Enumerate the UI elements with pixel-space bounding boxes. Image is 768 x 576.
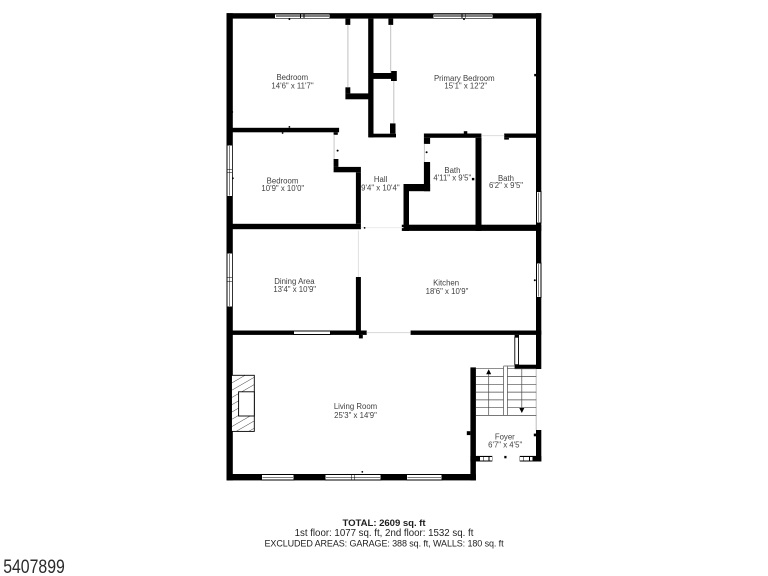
svg-text:6'2" x 9'5": 6'2" x 9'5" (489, 181, 523, 190)
svg-text:10'9" x 10'0": 10'9" x 10'0" (261, 184, 304, 193)
svg-text:EXCLUDED AREAS: GARAGE: 388 sq: EXCLUDED AREAS: GARAGE: 388 sq. ft, WALL… (265, 539, 505, 549)
svg-text:Bedroom: Bedroom (276, 73, 308, 82)
svg-text:14'6" x 11'7": 14'6" x 11'7" (271, 82, 313, 91)
svg-text:18'6" x 10'9": 18'6" x 10'9" (426, 287, 469, 296)
svg-text:25'3" x 14'9": 25'3" x 14'9" (334, 411, 377, 420)
svg-text:6'7" x 4'5": 6'7" x 4'5" (488, 441, 522, 450)
svg-text:1st floor: 1077 sq. ft, 2nd fl: 1st floor: 1077 sq. ft, 2nd floor: 1532 … (295, 528, 474, 539)
svg-text:9'4" x 10'4": 9'4" x 10'4" (361, 183, 400, 192)
svg-text:15'1" x 12'2": 15'1" x 12'2" (444, 82, 487, 91)
svg-text:4'11" x 9'5": 4'11" x 9'5" (433, 174, 471, 183)
svg-text:5407899: 5407899 (3, 555, 65, 576)
svg-text:13'4" x 10'9": 13'4" x 10'9" (273, 285, 316, 294)
